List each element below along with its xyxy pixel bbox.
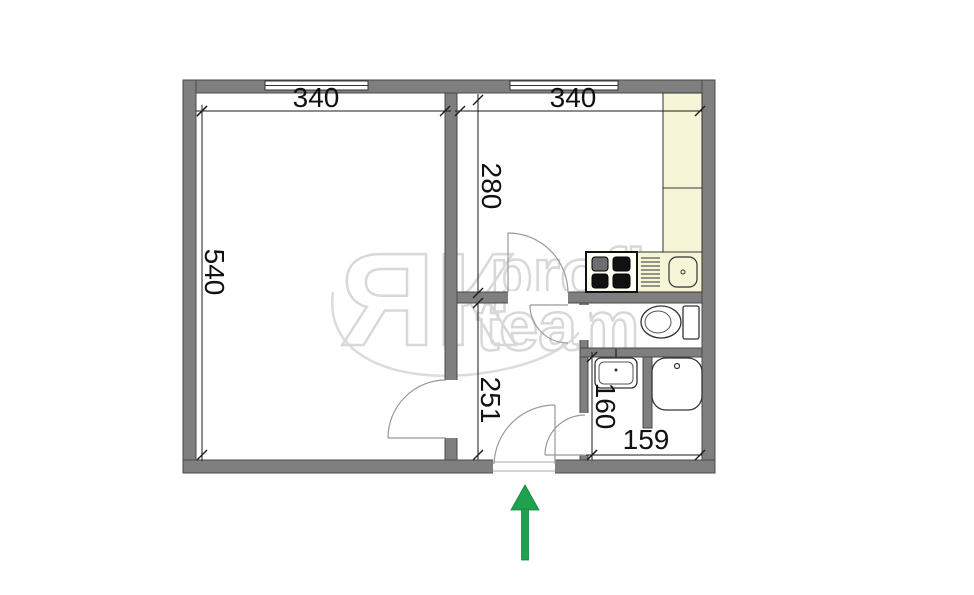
wall-exterior-right: [702, 80, 715, 473]
door-opening-wc: [579, 305, 589, 340]
kitchen-counter-lower: [663, 188, 702, 252]
dim-living-room-width: 340: [293, 82, 340, 113]
door-living-room: [388, 380, 446, 438]
wall-wc-bathroom-divider: [580, 348, 702, 357]
dim-bathroom-depth: 160: [590, 383, 621, 430]
entrance-opening: [493, 459, 555, 474]
kitchen-sink-icon: [669, 257, 697, 287]
dim-bathroom-width: 159: [623, 424, 670, 455]
wall-exterior-left: [183, 80, 196, 473]
wall-kitchen-bottom: [457, 292, 702, 303]
kitchen-counter-upper: [663, 93, 702, 188]
stove-icon: [586, 252, 637, 292]
wall-bathroom-partition: [643, 357, 652, 428]
kitchen-sink-counter: [637, 252, 702, 292]
dim-living-room-depth: 540: [199, 249, 230, 296]
dim-kitchen-width: 340: [550, 82, 597, 113]
dim-kitchen-depth: 280: [476, 163, 507, 210]
entrance-arrow-icon: [511, 485, 539, 560]
wall-exterior-top: [183, 80, 715, 93]
toilet-icon: [641, 306, 699, 339]
wall-exterior-bottom: [183, 460, 715, 473]
floor-plan: ЯК profi team: [0, 0, 974, 595]
door-opening-bathroom: [579, 413, 589, 455]
door-opening-kitchen: [508, 291, 568, 304]
shower-tray-icon: [652, 358, 702, 410]
door-opening-living-room: [444, 380, 458, 438]
dim-hallway-depth: 251: [475, 377, 506, 424]
